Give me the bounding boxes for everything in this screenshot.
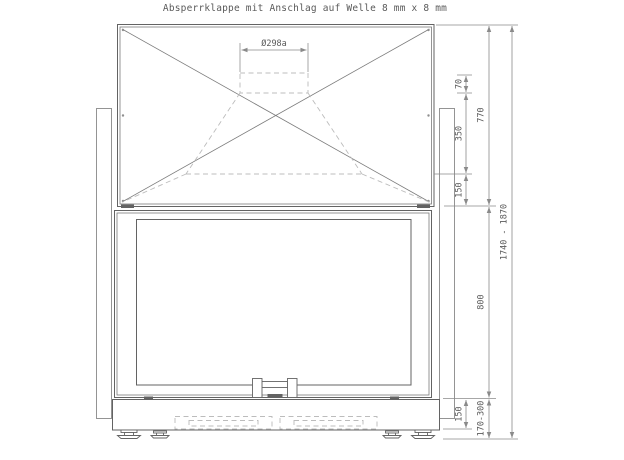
dimension-chain-middle: 770 800 170-300 — [477, 26, 490, 438]
dimension-chain-inner: 70 350 150 150 — [455, 76, 467, 428]
hood-panel — [118, 25, 435, 207]
foot-outer-right — [412, 430, 435, 439]
foot-inner-right — [383, 431, 401, 438]
flue-collar-hidden — [240, 73, 308, 93]
flue-diameter-dimension: Ø298a — [240, 38, 308, 72]
dim-label-foot-range: 170-300 — [477, 401, 487, 437]
hidden-funnel-outline — [123, 73, 430, 202]
drawing-title: Absperrklappe mit Anschlag auf Welle 8 m… — [163, 3, 447, 14]
technical-drawing-page: Absperrklappe mit Anschlag auf Welle 8 m… — [0, 0, 624, 460]
foot-inner-left — [151, 431, 169, 438]
dimension-overall: 1740 - 1870 — [500, 26, 513, 438]
x-brace-lines — [122, 29, 430, 202]
side-panels — [97, 109, 455, 419]
plinth-base — [113, 400, 440, 431]
foot-outer-left — [118, 430, 141, 439]
dim-label-flue-collar: 70 — [455, 79, 465, 89]
firebox-door — [115, 211, 432, 400]
dim-label-hood-lower: 150 — [455, 182, 465, 197]
dim-label-base-height: 150 — [455, 406, 465, 421]
door-latch — [268, 394, 283, 398]
dim-label-overall-height: 1740 - 1870 — [500, 204, 510, 260]
base-vent-openings — [175, 417, 377, 430]
fireplace-front-view-drawing: Absperrklappe mit Anschlag auf Welle 8 m… — [0, 0, 624, 460]
dim-label-firebox: 800 — [477, 294, 487, 309]
door-glass — [137, 220, 412, 386]
flue-diameter-label: Ø298a — [261, 38, 287, 49]
dim-label-funnel: 350 — [455, 126, 465, 141]
door-handle — [253, 379, 298, 399]
leveling-feet — [118, 430, 435, 439]
dim-label-hood-total: 770 — [477, 107, 487, 122]
